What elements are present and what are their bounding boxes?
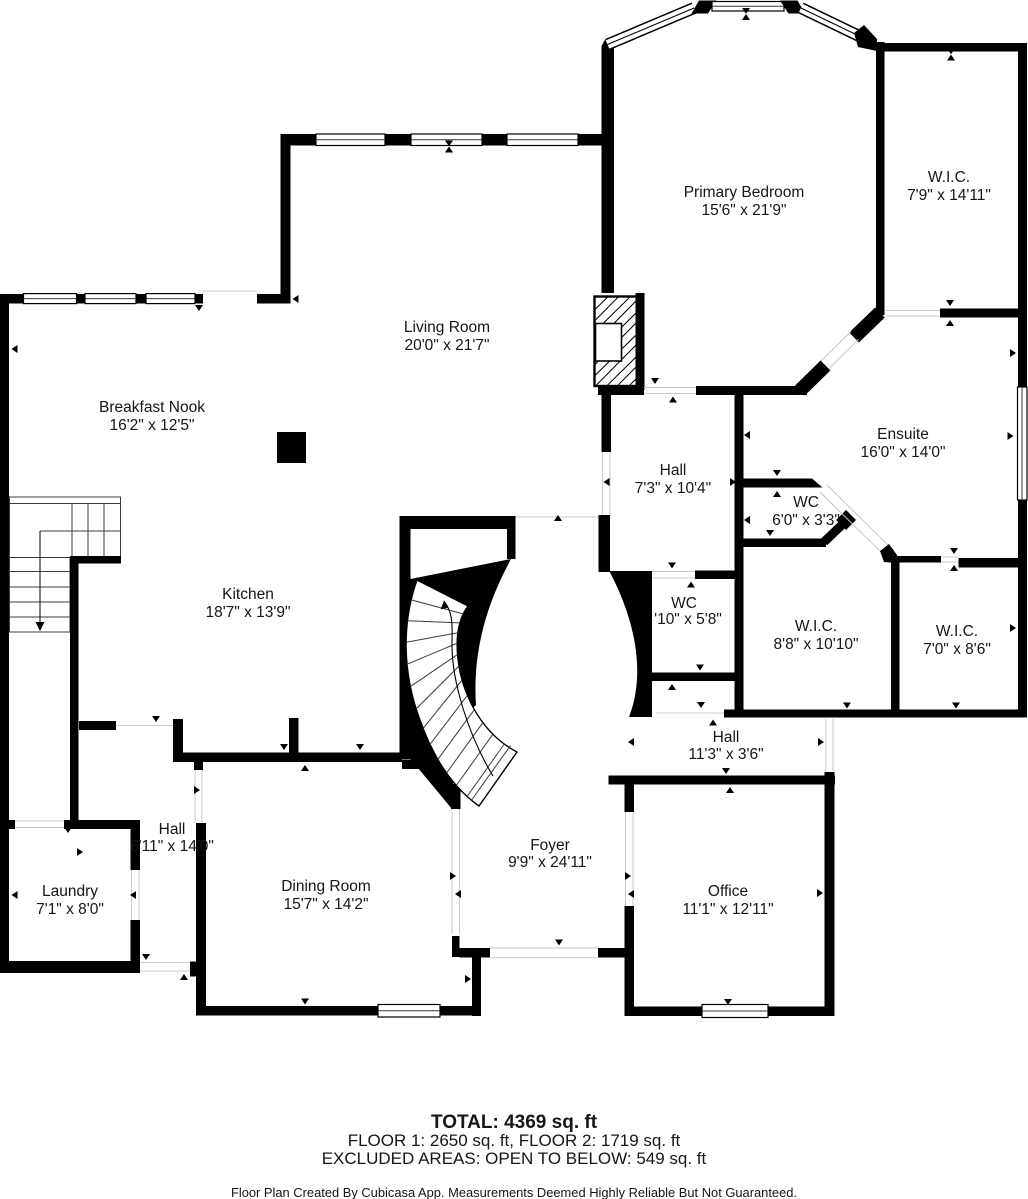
svg-text:Kitchen: Kitchen (222, 586, 274, 603)
svg-text:15'6" x 21'9": 15'6" x 21'9" (701, 202, 786, 219)
svg-text:Primary Bedroom: Primary Bedroom (684, 184, 805, 201)
svg-text:16'2" x 12'5": 16'2" x 12'5" (109, 417, 194, 434)
svg-text:7'0" x 8'6": 7'0" x 8'6" (923, 641, 991, 658)
svg-text:11'3" x 3'6": 11'3" x 3'6" (688, 746, 763, 763)
svg-text:WC: WC (671, 595, 697, 612)
svg-text:Living Room: Living Room (404, 319, 490, 336)
svg-text:Ensuite: Ensuite (877, 426, 929, 443)
svg-text:8'8" x 10'10": 8'8" x 10'10" (773, 636, 858, 653)
svg-text:9'9" x 24'11": 9'9" x 24'11" (508, 854, 592, 871)
svg-text:Laundry: Laundry (42, 883, 98, 900)
svg-text:7'9" x 14'11": 7'9" x 14'11" (907, 187, 991, 204)
svg-text:Dining Room: Dining Room (281, 878, 371, 895)
svg-text:Hall: Hall (660, 462, 687, 479)
svg-text:6'11" x 14'0": 6'11" x 14'0" (130, 838, 214, 855)
svg-text:Hall: Hall (159, 821, 186, 838)
svg-text:20'0" x 21'7": 20'0" x 21'7" (404, 337, 489, 354)
svg-text:FLOOR 1: 2650 sq. ft, FLOOR 2:: FLOOR 1: 2650 sq. ft, FLOOR 2: 1719 sq. … (348, 1131, 681, 1150)
svg-text:'10" x 5'8": '10" x 5'8" (654, 611, 722, 628)
svg-text:7'1" x 8'0": 7'1" x 8'0" (36, 901, 104, 918)
svg-text:Breakfast Nook: Breakfast Nook (99, 399, 205, 416)
svg-text:WC: WC (793, 494, 819, 511)
svg-text:16'0" x 14'0": 16'0" x 14'0" (860, 444, 945, 461)
svg-text:18'7" x 13'9": 18'7" x 13'9" (205, 604, 290, 621)
svg-text:Office: Office (708, 883, 748, 900)
svg-text:Hall: Hall (713, 729, 740, 746)
svg-text:TOTAL: 4369 sq. ft: TOTAL: 4369 sq. ft (431, 1112, 598, 1133)
svg-text:W.I.C.: W.I.C. (936, 623, 978, 640)
svg-text:7'3" x 10'4": 7'3" x 10'4" (635, 480, 711, 497)
svg-text:W.I.C.: W.I.C. (795, 618, 837, 635)
svg-text:Floor Plan Created By Cubicasa: Floor Plan Created By Cubicasa App. Meas… (231, 1185, 797, 1199)
svg-text:6'0" x 3'3": 6'0" x 3'3" (772, 512, 840, 529)
svg-text:Foyer: Foyer (530, 837, 570, 854)
svg-text:W.I.C.: W.I.C. (928, 169, 970, 186)
svg-text:15'7" x 14'2": 15'7" x 14'2" (283, 896, 368, 913)
svg-text:11'1" x 12'11": 11'1" x 12'11" (682, 901, 773, 918)
svg-text:EXCLUDED AREAS: OPEN TO BELOW:: EXCLUDED AREAS: OPEN TO BELOW: 549 sq. f… (322, 1149, 707, 1168)
